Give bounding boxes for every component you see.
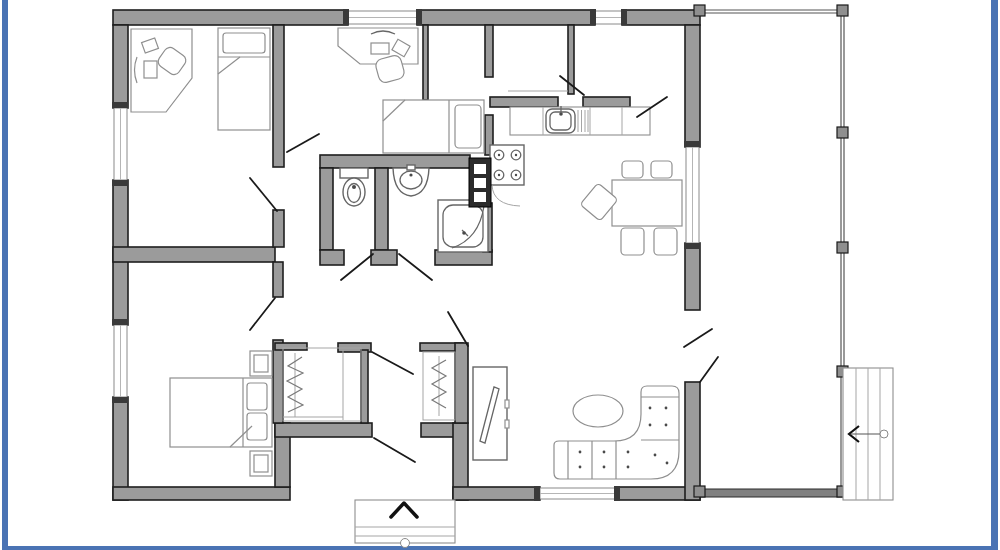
door-bathroom: [399, 254, 432, 280]
desk-office-1: [131, 29, 192, 112]
entry-arrow-origin: [401, 539, 410, 548]
door-terrace-a: [684, 329, 712, 347]
cabinet-knob: [505, 420, 509, 428]
terrace-post: [694, 486, 705, 497]
desk-item: [144, 61, 157, 78]
door-hall-closet: [372, 352, 413, 374]
door-wc: [341, 254, 373, 280]
chair: [651, 161, 672, 178]
living-room-furniture: [473, 367, 679, 479]
bathroom-fixtures: [393, 158, 491, 252]
door-master-bedroom: [250, 298, 275, 330]
pillow: [247, 383, 267, 410]
shower-drain: [462, 231, 466, 235]
terrace-edge-south: [700, 489, 843, 497]
tv-cabinet: [473, 367, 507, 460]
chair: [622, 161, 643, 178]
frame-bottom: [2, 546, 998, 550]
dining-table: [612, 180, 682, 226]
sink-tap: [407, 165, 415, 170]
pillow: [455, 105, 481, 148]
floor-plan-svg: [0, 0, 1000, 550]
pillow: [223, 33, 265, 53]
frame-right: [991, 0, 998, 550]
dining-set: [580, 161, 682, 255]
bed-single-1: [218, 28, 270, 130]
bathroom-sink: [393, 168, 429, 196]
entry-porch: [355, 500, 455, 548]
desk-office-2: [338, 28, 418, 84]
desk: [131, 29, 192, 112]
chair: [654, 228, 677, 255]
desk-item: [371, 43, 389, 54]
kitchen-counter: [510, 107, 650, 135]
door-living-room: [448, 312, 468, 346]
door-office-1: [250, 178, 277, 211]
toilet-tank: [340, 168, 368, 178]
chair: [621, 228, 644, 255]
terrace-post: [837, 127, 848, 138]
bed-single-2: [383, 100, 484, 153]
interior-walls: [113, 25, 630, 423]
wardrobe-left: [283, 348, 361, 421]
steps-arrow-origin: [880, 430, 888, 438]
terrace-post: [837, 242, 848, 253]
terrace: [694, 5, 893, 500]
pillow: [247, 413, 267, 440]
terrace-post: [837, 5, 848, 16]
door-entry: [374, 438, 415, 462]
master-bedroom-furniture: [170, 351, 272, 476]
coffee-table: [573, 395, 623, 427]
counter-curve: [492, 185, 520, 206]
door-terrace-b: [700, 357, 718, 382]
floor-plan-page: [0, 0, 1000, 550]
cabinet-knob: [505, 400, 509, 408]
wc-fixtures: [340, 168, 368, 206]
frame-left: [2, 0, 8, 550]
toilet-bowl: [343, 178, 365, 206]
door-office-2: [287, 134, 319, 152]
wardrobe-right: [423, 352, 455, 420]
terrace-post: [694, 5, 705, 16]
